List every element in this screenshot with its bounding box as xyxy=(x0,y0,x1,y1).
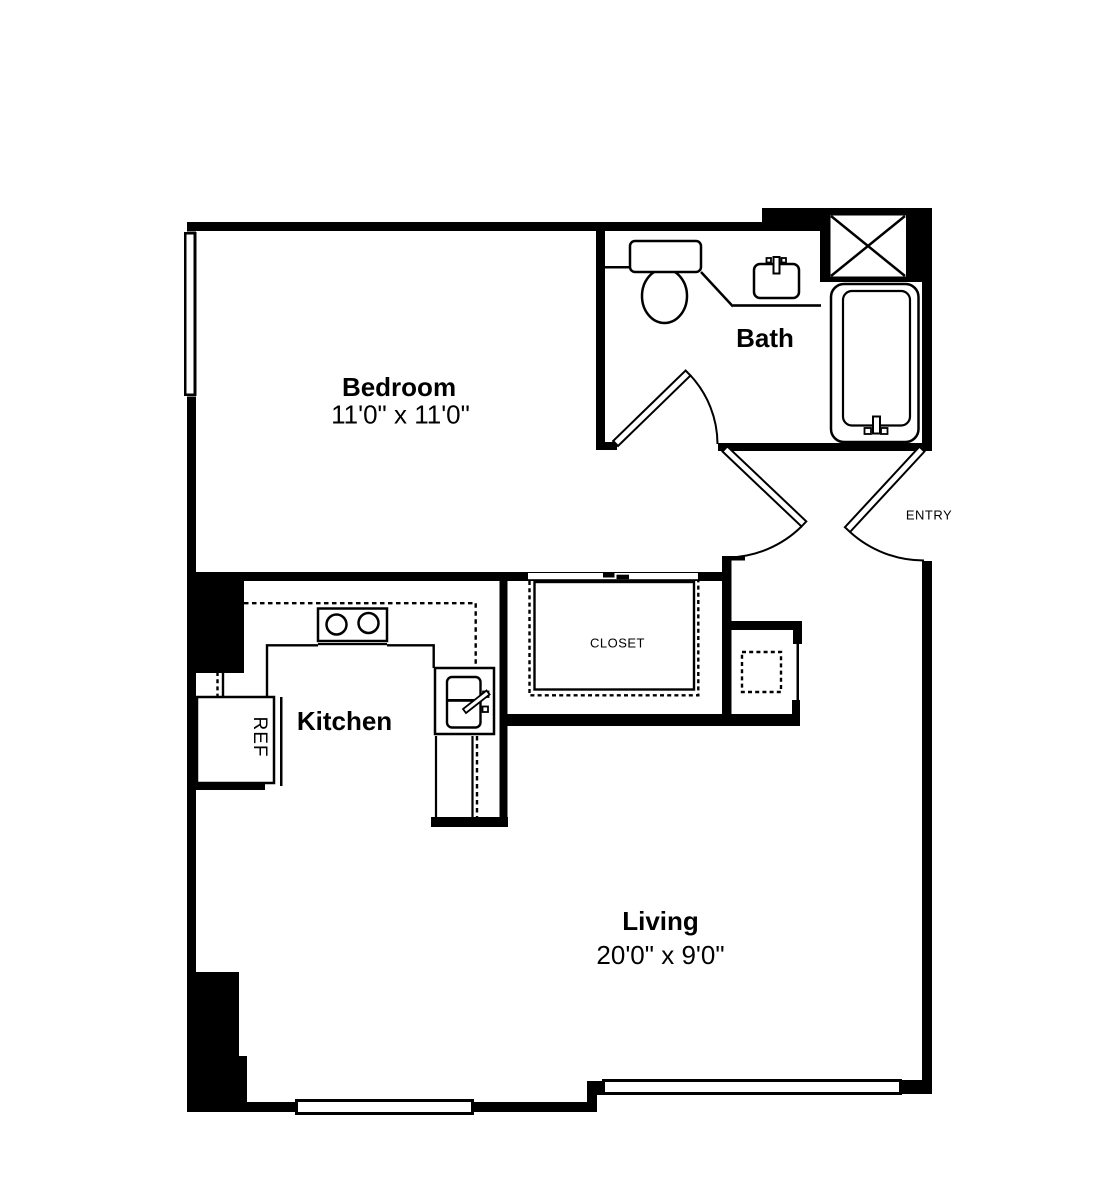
svg-text:CLOSET: CLOSET xyxy=(590,636,645,651)
svg-text:Living: Living xyxy=(622,906,699,936)
svg-text:ENTRY: ENTRY xyxy=(906,508,952,523)
svg-text:11'0" x 11'0": 11'0" x 11'0" xyxy=(331,400,470,430)
svg-text:Bath: Bath xyxy=(736,323,794,353)
svg-text:20'0" x 9'0": 20'0" x 9'0" xyxy=(596,940,724,970)
svg-text:Bedroom: Bedroom xyxy=(342,372,456,402)
svg-text:Kitchen: Kitchen xyxy=(297,706,392,736)
svg-text:REF: REF xyxy=(249,717,270,758)
